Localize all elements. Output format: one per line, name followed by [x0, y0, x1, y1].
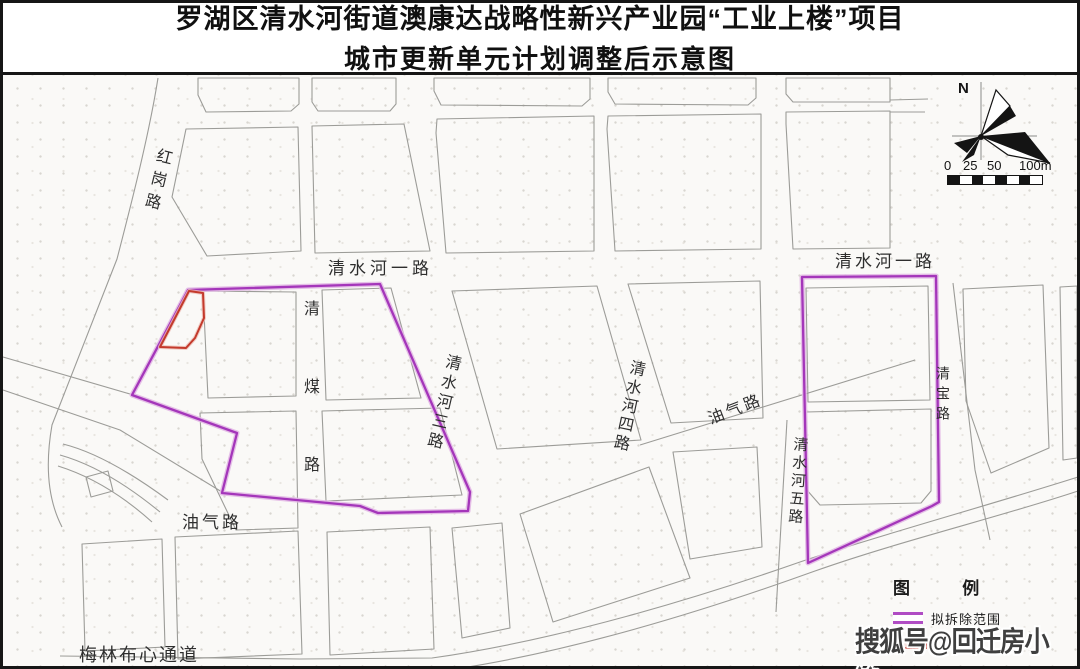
road-label-youqi-west: 油气路	[182, 514, 242, 531]
scale-bar	[947, 175, 1043, 185]
north-label: N	[958, 80, 969, 97]
demolition-outline-east	[802, 276, 939, 563]
road-label-qingshuihe1-east: 清水河一路	[835, 253, 935, 270]
page-title-line2: 城市更新单元计划调整后示意图	[344, 39, 736, 76]
planning-map-page: 红岗路 清水河一路 清水河一路 清煤路 清水河三路 清水河四路 油气路 清水河五…	[0, 0, 1080, 669]
legend-header: 图 例	[893, 574, 1003, 599]
map-graphics	[0, 0, 1080, 669]
road-label-qingbao: 清宝路	[934, 366, 948, 426]
demolition-outline-halo	[132, 276, 939, 563]
title-block: 罗湖区清水河街道澳康达战略性新兴产业园“工业上楼”项目 城市更新单元计划调整后示…	[0, 0, 1080, 75]
page-title-line1: 罗湖区清水河街道澳康达战略性新兴产业园“工业上楼”项目	[176, 0, 905, 36]
scale-tick-50: 50	[987, 158, 1001, 173]
scale-bar-labels: 0 25 50 100m	[941, 158, 1051, 172]
demolition-outline	[132, 276, 939, 563]
road-label-qingmei: 清煤路	[301, 300, 317, 534]
watermark-text: 搜狐号@回迁房小锋	[855, 620, 1058, 669]
road-label-qingshuihe1-west: 清水河一路	[328, 260, 433, 277]
scale-tick-0: 0	[944, 158, 951, 173]
scale-tick-25: 25	[963, 158, 977, 173]
city-blocks-layer	[82, 78, 1077, 659]
scale-tick-100: 100m	[1019, 158, 1052, 173]
road-label-meilin-buxin: 梅林布心通道	[79, 646, 199, 664]
